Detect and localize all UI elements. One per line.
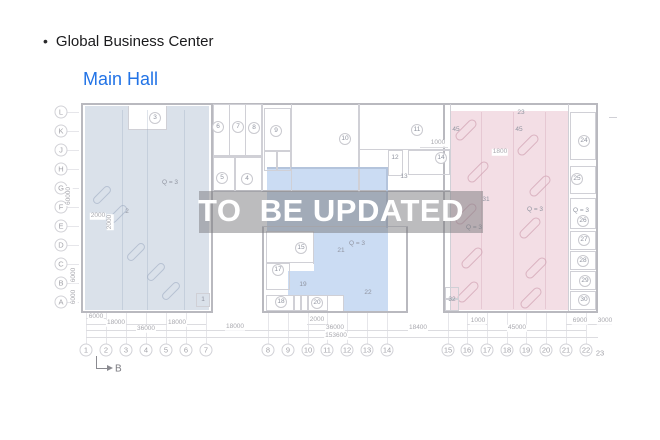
room-box: [264, 151, 277, 171]
note-text: Q = 3: [527, 207, 543, 214]
axis-row-label: K: [55, 125, 68, 138]
room-number: 28: [577, 255, 589, 267]
room-number: 9: [270, 125, 282, 137]
room-number: 11: [411, 124, 423, 136]
grid-line: [288, 313, 289, 344]
grid-line: [546, 313, 547, 344]
section-arrow-head-icon: [107, 365, 113, 371]
row-leader-line: [67, 226, 79, 227]
dim-text: 6900: [572, 318, 588, 325]
grid-line: [487, 313, 488, 344]
row-leader-line: [67, 207, 79, 208]
note-text: Q = 3: [162, 180, 178, 187]
room-box: [277, 151, 291, 171]
dim-text: 18000: [225, 324, 245, 331]
axis-col-label: 4: [140, 344, 153, 357]
wall: [609, 117, 617, 118]
note-text: 12: [391, 155, 398, 162]
wall: [513, 112, 514, 309]
axis-col-label: 6: [180, 344, 193, 357]
note-text: 13: [400, 174, 407, 181]
grid-line: [126, 313, 127, 344]
section-arrow-label: B: [115, 364, 122, 375]
wall: [406, 226, 408, 313]
note-text: 45: [515, 127, 522, 134]
axis-row-label: J: [55, 144, 68, 157]
wall: [166, 106, 167, 129]
wall: [343, 295, 344, 311]
axis-col-label: 20: [540, 344, 553, 357]
room-number: 10: [339, 133, 351, 145]
axis-row-label: A: [55, 296, 68, 309]
room-number: 3: [149, 112, 161, 124]
wall: [596, 103, 598, 313]
dim-text: 45000: [507, 325, 527, 332]
note-text: 23: [517, 110, 524, 117]
dim-text: 3000: [597, 318, 613, 325]
axis-col-label: 10: [302, 344, 315, 357]
dim-text: 6000: [71, 267, 78, 283]
dim-text: 6000: [88, 314, 104, 321]
middle-zone: [343, 296, 388, 311]
room-box: [301, 295, 308, 311]
axis-col-label: 17: [481, 344, 494, 357]
room-number: 8: [248, 122, 260, 134]
axis-row-label: H: [55, 163, 68, 176]
note-text: 32: [448, 297, 455, 304]
dim-text: 18000: [167, 320, 187, 327]
axis-col-label: 14: [381, 344, 394, 357]
axis-col-label: 22: [580, 344, 593, 357]
grid-line: [467, 313, 468, 344]
section-arrow-line: [96, 368, 107, 369]
axis-col-label: 2: [100, 344, 113, 357]
note-text: 31: [482, 197, 489, 204]
room-number: 5: [216, 172, 228, 184]
axis-col-label: 1: [80, 344, 93, 357]
room-box: [294, 295, 301, 311]
room-number: 26: [577, 215, 589, 227]
wall: [81, 103, 83, 313]
dim-text: 36000: [325, 325, 345, 332]
room-number: 24: [578, 135, 590, 147]
note-text: 1: [201, 297, 205, 304]
wall: [568, 104, 569, 311]
grid-line: [106, 313, 107, 344]
room-number: 29: [579, 275, 591, 287]
axis-row-label: B: [55, 277, 68, 290]
axis-row-label: D: [55, 239, 68, 252]
note-text: Q = 3: [573, 208, 589, 215]
wall: [545, 112, 546, 309]
dim-text: 6000: [71, 289, 78, 305]
axis-col-label: 7: [200, 344, 213, 357]
wall: [128, 106, 129, 129]
row-leader-line: [67, 245, 79, 246]
room-number: 4: [241, 173, 253, 185]
room-number: 30: [578, 294, 590, 306]
row-leader-line: [67, 264, 79, 265]
axis-col-label: 8: [262, 344, 275, 357]
axis-col-label: 12: [341, 344, 354, 357]
dim-text: 153600: [324, 333, 348, 340]
axis-col-label: 21: [560, 344, 573, 357]
axis-col-label: 9: [282, 344, 295, 357]
grid-line: [186, 313, 187, 344]
grid-line: [268, 313, 269, 344]
wall: [291, 104, 292, 191]
dim-text: 18000: [106, 320, 126, 327]
note-text: 45: [452, 127, 459, 134]
room-number: 17: [272, 264, 284, 276]
dim-text: 36000: [136, 326, 156, 333]
wall: [262, 104, 263, 191]
dim-text: 1000: [470, 318, 486, 325]
note-text: 2: [125, 209, 129, 216]
wall: [122, 110, 123, 310]
room-number: 14: [435, 152, 447, 164]
dim-text: 1800: [492, 149, 508, 156]
room-number: 15: [295, 242, 307, 254]
slide: • Global Business Center Main Hall LKJHG…: [0, 0, 660, 440]
axis-col-label: 5: [160, 344, 173, 357]
note-text: 22: [364, 290, 371, 297]
row-leader-line: [67, 112, 79, 113]
room-number: 20: [311, 297, 323, 309]
axis-col-label: 16: [461, 344, 474, 357]
axis-col-label: 23: [596, 349, 604, 358]
room-number: 18: [275, 296, 287, 308]
axis-row-label: L: [55, 106, 68, 119]
axis-row-label: C: [55, 258, 68, 271]
grid-line: [347, 313, 348, 344]
note-text: 21: [337, 248, 344, 255]
axis-col-label: 3: [120, 344, 133, 357]
grid-line: [448, 313, 449, 344]
wall: [81, 103, 598, 105]
dim-line: [420, 147, 448, 148]
grid-line: [566, 313, 567, 344]
wall: [147, 110, 148, 310]
axis-col-label: 18: [501, 344, 514, 357]
axis-col-label: 15: [442, 344, 455, 357]
row-leader-line: [67, 131, 79, 132]
grid-line: [367, 313, 368, 344]
watermark-text: TO BE UPDATED: [198, 193, 464, 229]
axis-col-label: 11: [321, 344, 334, 357]
grid-line: [166, 313, 167, 344]
middle-zone: [288, 271, 326, 296]
row-leader-line: [67, 169, 79, 170]
note-text: Q = 3: [349, 241, 365, 248]
axis-row-label: E: [55, 220, 68, 233]
wall: [184, 110, 185, 310]
wall: [262, 226, 264, 313]
room-number: 7: [232, 121, 244, 133]
note-text: 19: [299, 282, 306, 289]
room-number: 25: [571, 173, 583, 185]
axis-col-label: 13: [361, 344, 374, 357]
dim-text: 2000: [90, 213, 106, 220]
room-number: 6: [212, 121, 224, 133]
grid-line: [206, 313, 207, 344]
dim-text: 18400: [408, 325, 428, 332]
room-number: 27: [578, 234, 590, 246]
dim-text: 2000: [107, 214, 114, 230]
wall: [358, 104, 360, 192]
axis-col-label: 19: [520, 344, 533, 357]
grid-line: [387, 313, 388, 344]
dim-text: 2000: [309, 317, 325, 324]
row-leader-line: [67, 150, 79, 151]
dim-text: 1000: [430, 140, 446, 147]
dim-text: 60000: [66, 186, 73, 206]
